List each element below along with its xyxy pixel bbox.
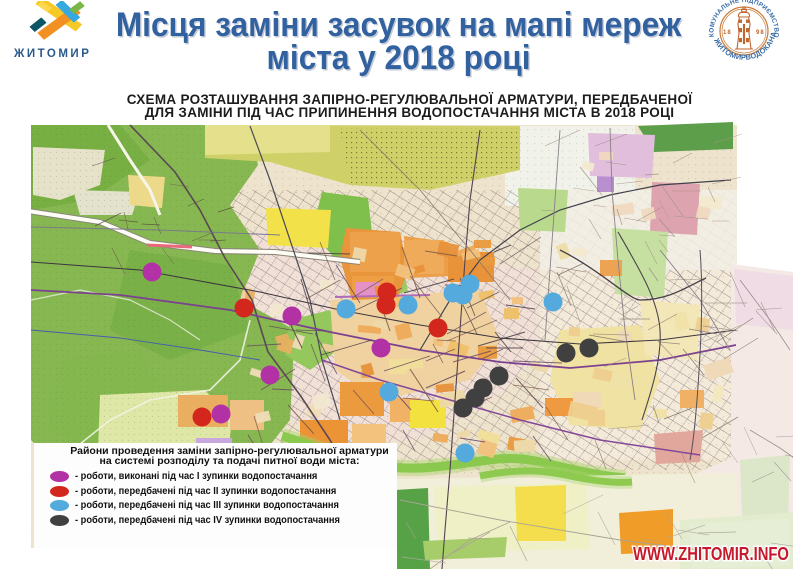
svg-text:WWW.ZHITOMIR.INFO: WWW.ZHITOMIR.INFO bbox=[633, 543, 789, 564]
